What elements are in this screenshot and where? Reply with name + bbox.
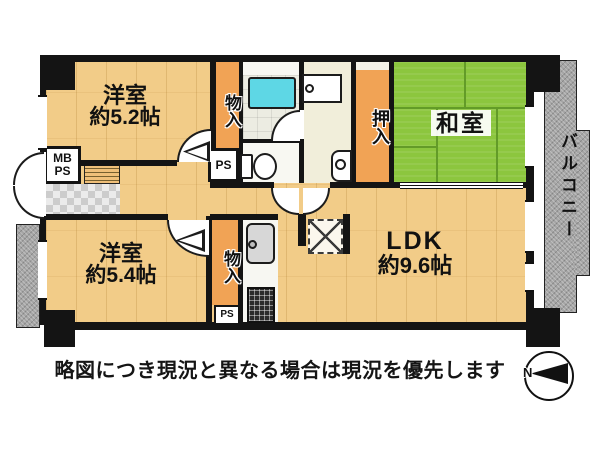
balcony-bump: [576, 130, 590, 276]
toilet-tank: [240, 154, 253, 179]
room-name-west54: 洋室: [46, 242, 196, 265]
mb-ps-box: MB PS: [44, 146, 81, 184]
ps-box-top: PS: [208, 148, 239, 182]
mb-ps-label: PS: [54, 165, 70, 178]
wall-h-hall-bottom-right: [210, 214, 278, 220]
balcony-left-strip: [16, 224, 40, 328]
window-right-ldk-lower: [525, 262, 534, 292]
corner-block-top-right: [526, 55, 560, 92]
sliding-door-tatami-ldk: [400, 182, 523, 189]
bathtub: [248, 77, 296, 109]
closet-label-storage-bottom: 物入: [212, 236, 239, 298]
wall-top: [44, 55, 528, 62]
ps-bottom-label: PS: [220, 310, 233, 321]
kitchen-faucet: [248, 240, 257, 249]
window-right-ldk-upper: [525, 200, 534, 253]
washing-machine-tap: [305, 84, 314, 93]
window-right-tatami: [525, 105, 534, 168]
window-left-upper: [38, 95, 47, 150]
washbasin-bowl: [335, 159, 346, 170]
entrance-door-arc-upper: [13, 152, 44, 185]
balcony-label: バルコニー: [545, 92, 576, 282]
wall-bottom: [44, 322, 538, 330]
bathroom-counter: [243, 61, 300, 75]
shoe-cabinet: [84, 164, 120, 184]
tatami-line: [496, 107, 498, 183]
tatami-line: [394, 107, 526, 109]
room-label-japanese: 和室: [431, 110, 491, 136]
room-size-ldk: 約9.6帖: [330, 254, 500, 277]
corner-block-bottom-left: [44, 310, 75, 347]
wall-h-hall-top-right: [330, 182, 392, 188]
corner-block-top-left: [40, 55, 75, 90]
north-label: N: [523, 365, 532, 380]
entrance-door-arc-lower: [13, 186, 44, 219]
room-label-west54: 洋室 約5.4帖: [46, 242, 196, 287]
wall-stub-left: [298, 214, 306, 246]
wall-h-hall-bottom-left: [44, 214, 168, 220]
genkan-tiles: [46, 184, 120, 217]
tatami-line: [464, 61, 466, 109]
room-size-west52: 約5.2帖: [50, 107, 200, 129]
wall-h-japanese-bottom-right: [523, 182, 528, 188]
wall-h-west52-bottom: [80, 160, 177, 166]
room-name-japanese: 和室: [436, 110, 486, 136]
toilet-bowl: [253, 153, 277, 180]
tatami-line: [394, 146, 438, 148]
kitchen-stove: [247, 287, 275, 323]
floor-plan: MB PS PS PS 洋室 約5.2帖 洋室 約5.4帖 LDK 約9.6帖 …: [0, 0, 600, 450]
room-label-west52: 洋室 約5.2帖: [50, 84, 200, 129]
room-name-ldk: LDK: [330, 228, 500, 254]
room-size-west54: 約5.4帖: [46, 265, 196, 287]
closet-label-oshiire: 押入: [356, 96, 389, 158]
oshiire-shelf: [356, 61, 389, 70]
wall-h-hall-top-left: [210, 182, 274, 188]
ps-box-bottom: PS: [214, 305, 240, 325]
corner-block-bottom-right: [526, 308, 560, 347]
caption-disclaimer: 略図につき現況と異なる場合は現況を優先します: [0, 354, 560, 383]
ps-top-label: PS: [215, 159, 231, 172]
closet-label-storage-top: 物入: [215, 80, 240, 142]
room-label-ldk: LDK 約9.6帖: [330, 228, 500, 277]
